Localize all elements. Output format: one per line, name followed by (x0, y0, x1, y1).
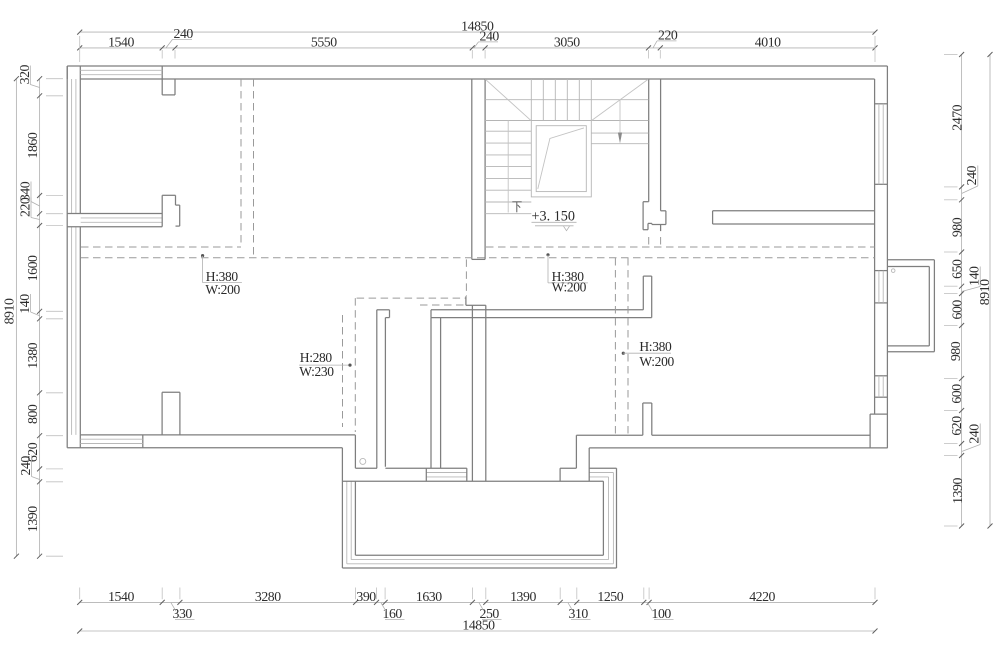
svg-text:14850: 14850 (462, 618, 495, 633)
svg-text:600: 600 (949, 384, 964, 404)
svg-text:980: 980 (949, 217, 964, 237)
svg-text:1390: 1390 (510, 589, 536, 604)
svg-text:3050: 3050 (554, 34, 580, 49)
svg-text:1390: 1390 (950, 478, 965, 504)
svg-text:100: 100 (652, 606, 672, 621)
svg-text:650: 650 (949, 259, 964, 279)
svg-text:H:380: H:380 (639, 339, 672, 354)
svg-text:1860: 1860 (25, 132, 40, 158)
svg-text:1630: 1630 (416, 589, 442, 604)
svg-text:140: 140 (17, 294, 32, 314)
svg-text:1390: 1390 (25, 506, 40, 532)
svg-text:220: 220 (658, 28, 678, 43)
svg-text:3280: 3280 (255, 589, 281, 604)
svg-text:1380: 1380 (25, 342, 40, 368)
svg-text:330: 330 (173, 606, 193, 621)
svg-text:980: 980 (948, 341, 963, 361)
svg-text:1250: 1250 (597, 589, 623, 604)
svg-text:5550: 5550 (311, 34, 337, 49)
svg-text:240: 240 (964, 165, 979, 185)
svg-text:240: 240 (967, 424, 982, 444)
svg-text:390: 390 (356, 589, 376, 604)
svg-text:W:200: W:200 (639, 354, 674, 369)
svg-text:W:200: W:200 (205, 282, 240, 297)
svg-text:1600: 1600 (25, 255, 40, 281)
svg-text:220: 220 (18, 197, 33, 217)
svg-text:H:280: H:280 (300, 350, 333, 365)
svg-text:4220: 4220 (749, 589, 775, 604)
svg-text:320: 320 (17, 64, 32, 84)
svg-text:2470: 2470 (950, 104, 965, 130)
svg-text:W:200: W:200 (552, 280, 587, 295)
svg-text:240: 240 (174, 26, 194, 41)
svg-text:600: 600 (949, 300, 964, 320)
svg-text:800: 800 (25, 404, 40, 424)
svg-text:4010: 4010 (755, 34, 781, 49)
svg-text:8910: 8910 (2, 298, 17, 324)
svg-text:240: 240 (18, 456, 33, 476)
svg-text:1540: 1540 (108, 34, 134, 49)
svg-text:620: 620 (949, 416, 964, 436)
svg-text:160: 160 (383, 606, 403, 621)
svg-text:1540: 1540 (108, 589, 134, 604)
svg-text:240: 240 (480, 29, 500, 44)
svg-text:8910: 8910 (977, 279, 992, 305)
svg-text:W:230: W:230 (299, 364, 334, 379)
